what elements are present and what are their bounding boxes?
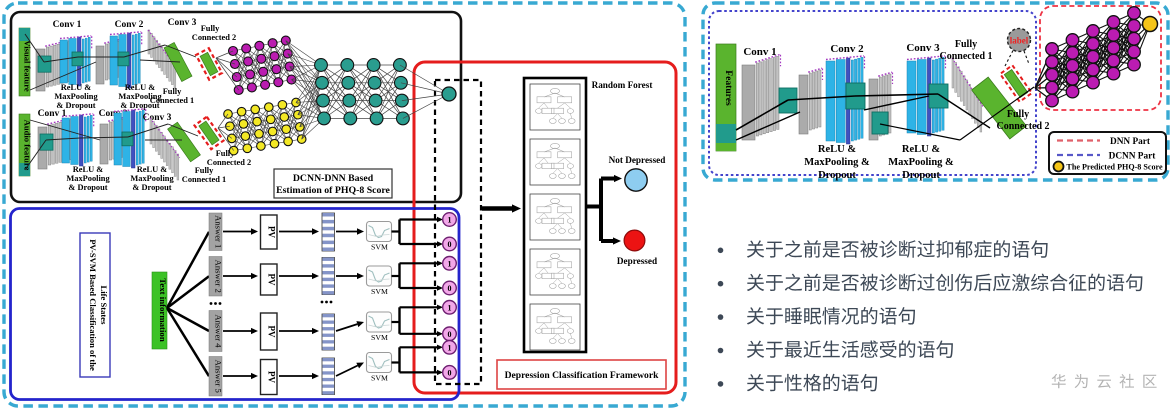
svg-text:Conv 3: Conv 3 [143, 113, 172, 123]
svg-text:MaxPooling &: MaxPooling & [888, 157, 954, 168]
svg-text:Fully: Fully [163, 87, 182, 96]
svg-text:Dropout: Dropout [902, 170, 940, 181]
svg-text:PV-SVM Based Classification of: PV-SVM Based Classification of the [88, 239, 98, 371]
svg-text:Not Depressed: Not Depressed [609, 155, 666, 165]
svg-text:Conv 1: Conv 1 [53, 20, 82, 30]
svg-text:Connected 2: Connected 2 [192, 33, 236, 42]
svg-text:label: label [1010, 36, 1029, 46]
svg-text:MaxPooling &: MaxPooling & [804, 157, 870, 168]
svg-text:SVM: SVM [371, 374, 388, 383]
svg-text:Conv 1: Conv 1 [743, 46, 776, 58]
svg-text:Random Forest: Random Forest [592, 80, 654, 90]
svg-text:Features: Features [723, 70, 734, 106]
svg-text:1: 1 [448, 216, 452, 225]
svg-text:MaxPooling: MaxPooling [130, 174, 174, 183]
svg-text:1: 1 [448, 343, 452, 352]
svg-text:ReLU &: ReLU & [818, 144, 856, 155]
svg-text:0: 0 [448, 240, 452, 249]
svg-text:The Predicted PHQ-8 Score: The Predicted PHQ-8 Score [1066, 163, 1163, 172]
svg-text:Life States: Life States [99, 286, 109, 326]
svg-text:Conv 3: Conv 3 [906, 42, 940, 54]
svg-text:SVM: SVM [371, 333, 388, 342]
svg-text:Conv 2: Conv 2 [115, 20, 144, 30]
svg-text:0: 0 [448, 284, 452, 293]
svg-text:Answer 1: Answer 1 [213, 215, 223, 248]
svg-text:1: 1 [448, 259, 452, 268]
svg-text:MaxPooling: MaxPooling [54, 92, 98, 101]
svg-text:Connected 2: Connected 2 [207, 158, 251, 167]
svg-text:Answer 5: Answer 5 [214, 360, 224, 393]
svg-text:& Dropout: & Dropout [132, 183, 171, 192]
svg-text:Fully: Fully [195, 166, 214, 175]
svg-text:Connected 1: Connected 1 [182, 175, 226, 184]
svg-text:0: 0 [448, 330, 452, 339]
svg-text:1: 1 [448, 303, 452, 312]
svg-text:Estimation of PHQ-8 Score: Estimation of PHQ-8 Score [276, 185, 390, 196]
svg-text:Depression Classification Fram: Depression Classification Framework [505, 370, 660, 381]
svg-text:DCNN Part: DCNN Part [1109, 152, 1157, 162]
svg-text:Answer 4: Answer 4 [214, 314, 224, 348]
svg-text:DNN Part: DNN Part [1110, 137, 1151, 147]
svg-text:Fully: Fully [955, 39, 977, 50]
svg-text:Audio feature: Audio feature [23, 120, 33, 171]
svg-text:Visual feature: Visual feature [23, 40, 33, 92]
svg-text:Conv 1: Conv 1 [38, 109, 67, 119]
svg-text:Fully: Fully [201, 24, 220, 33]
svg-text:Text information: Text information [158, 278, 168, 342]
svg-text:DCNN-DNN Based: DCNN-DNN Based [293, 173, 374, 184]
svg-text:& Dropout: & Dropout [68, 183, 107, 192]
svg-text:Depressed: Depressed [617, 256, 657, 266]
svg-text:Conv 3: Conv 3 [168, 18, 197, 28]
svg-text:0: 0 [448, 368, 452, 377]
svg-text:Connected 1: Connected 1 [150, 96, 194, 105]
svg-text:ReLU &: ReLU & [61, 83, 91, 92]
svg-text:ReLU &: ReLU & [125, 83, 155, 92]
svg-text:PV: PV [267, 226, 277, 238]
svg-text:MaxPooling: MaxPooling [66, 174, 110, 183]
svg-text:ReLU &: ReLU & [137, 165, 167, 174]
svg-text:ReLU &: ReLU & [902, 144, 940, 155]
svg-text:SVM: SVM [371, 287, 388, 296]
svg-text:Answer 2: Answer 2 [214, 260, 224, 293]
svg-text:Conv 2: Conv 2 [830, 43, 864, 55]
svg-text:Fully: Fully [1007, 109, 1029, 120]
svg-text:Connected 2: Connected 2 [996, 121, 1049, 132]
svg-text:PV: PV [267, 274, 277, 286]
svg-text:PV: PV [267, 371, 277, 383]
svg-text:PV: PV [267, 326, 277, 338]
svg-text:SVM: SVM [371, 243, 388, 252]
svg-text:Dropout: Dropout [818, 170, 856, 181]
svg-text:Connected 1: Connected 1 [939, 51, 992, 62]
svg-text:ReLU &: ReLU & [73, 165, 103, 174]
